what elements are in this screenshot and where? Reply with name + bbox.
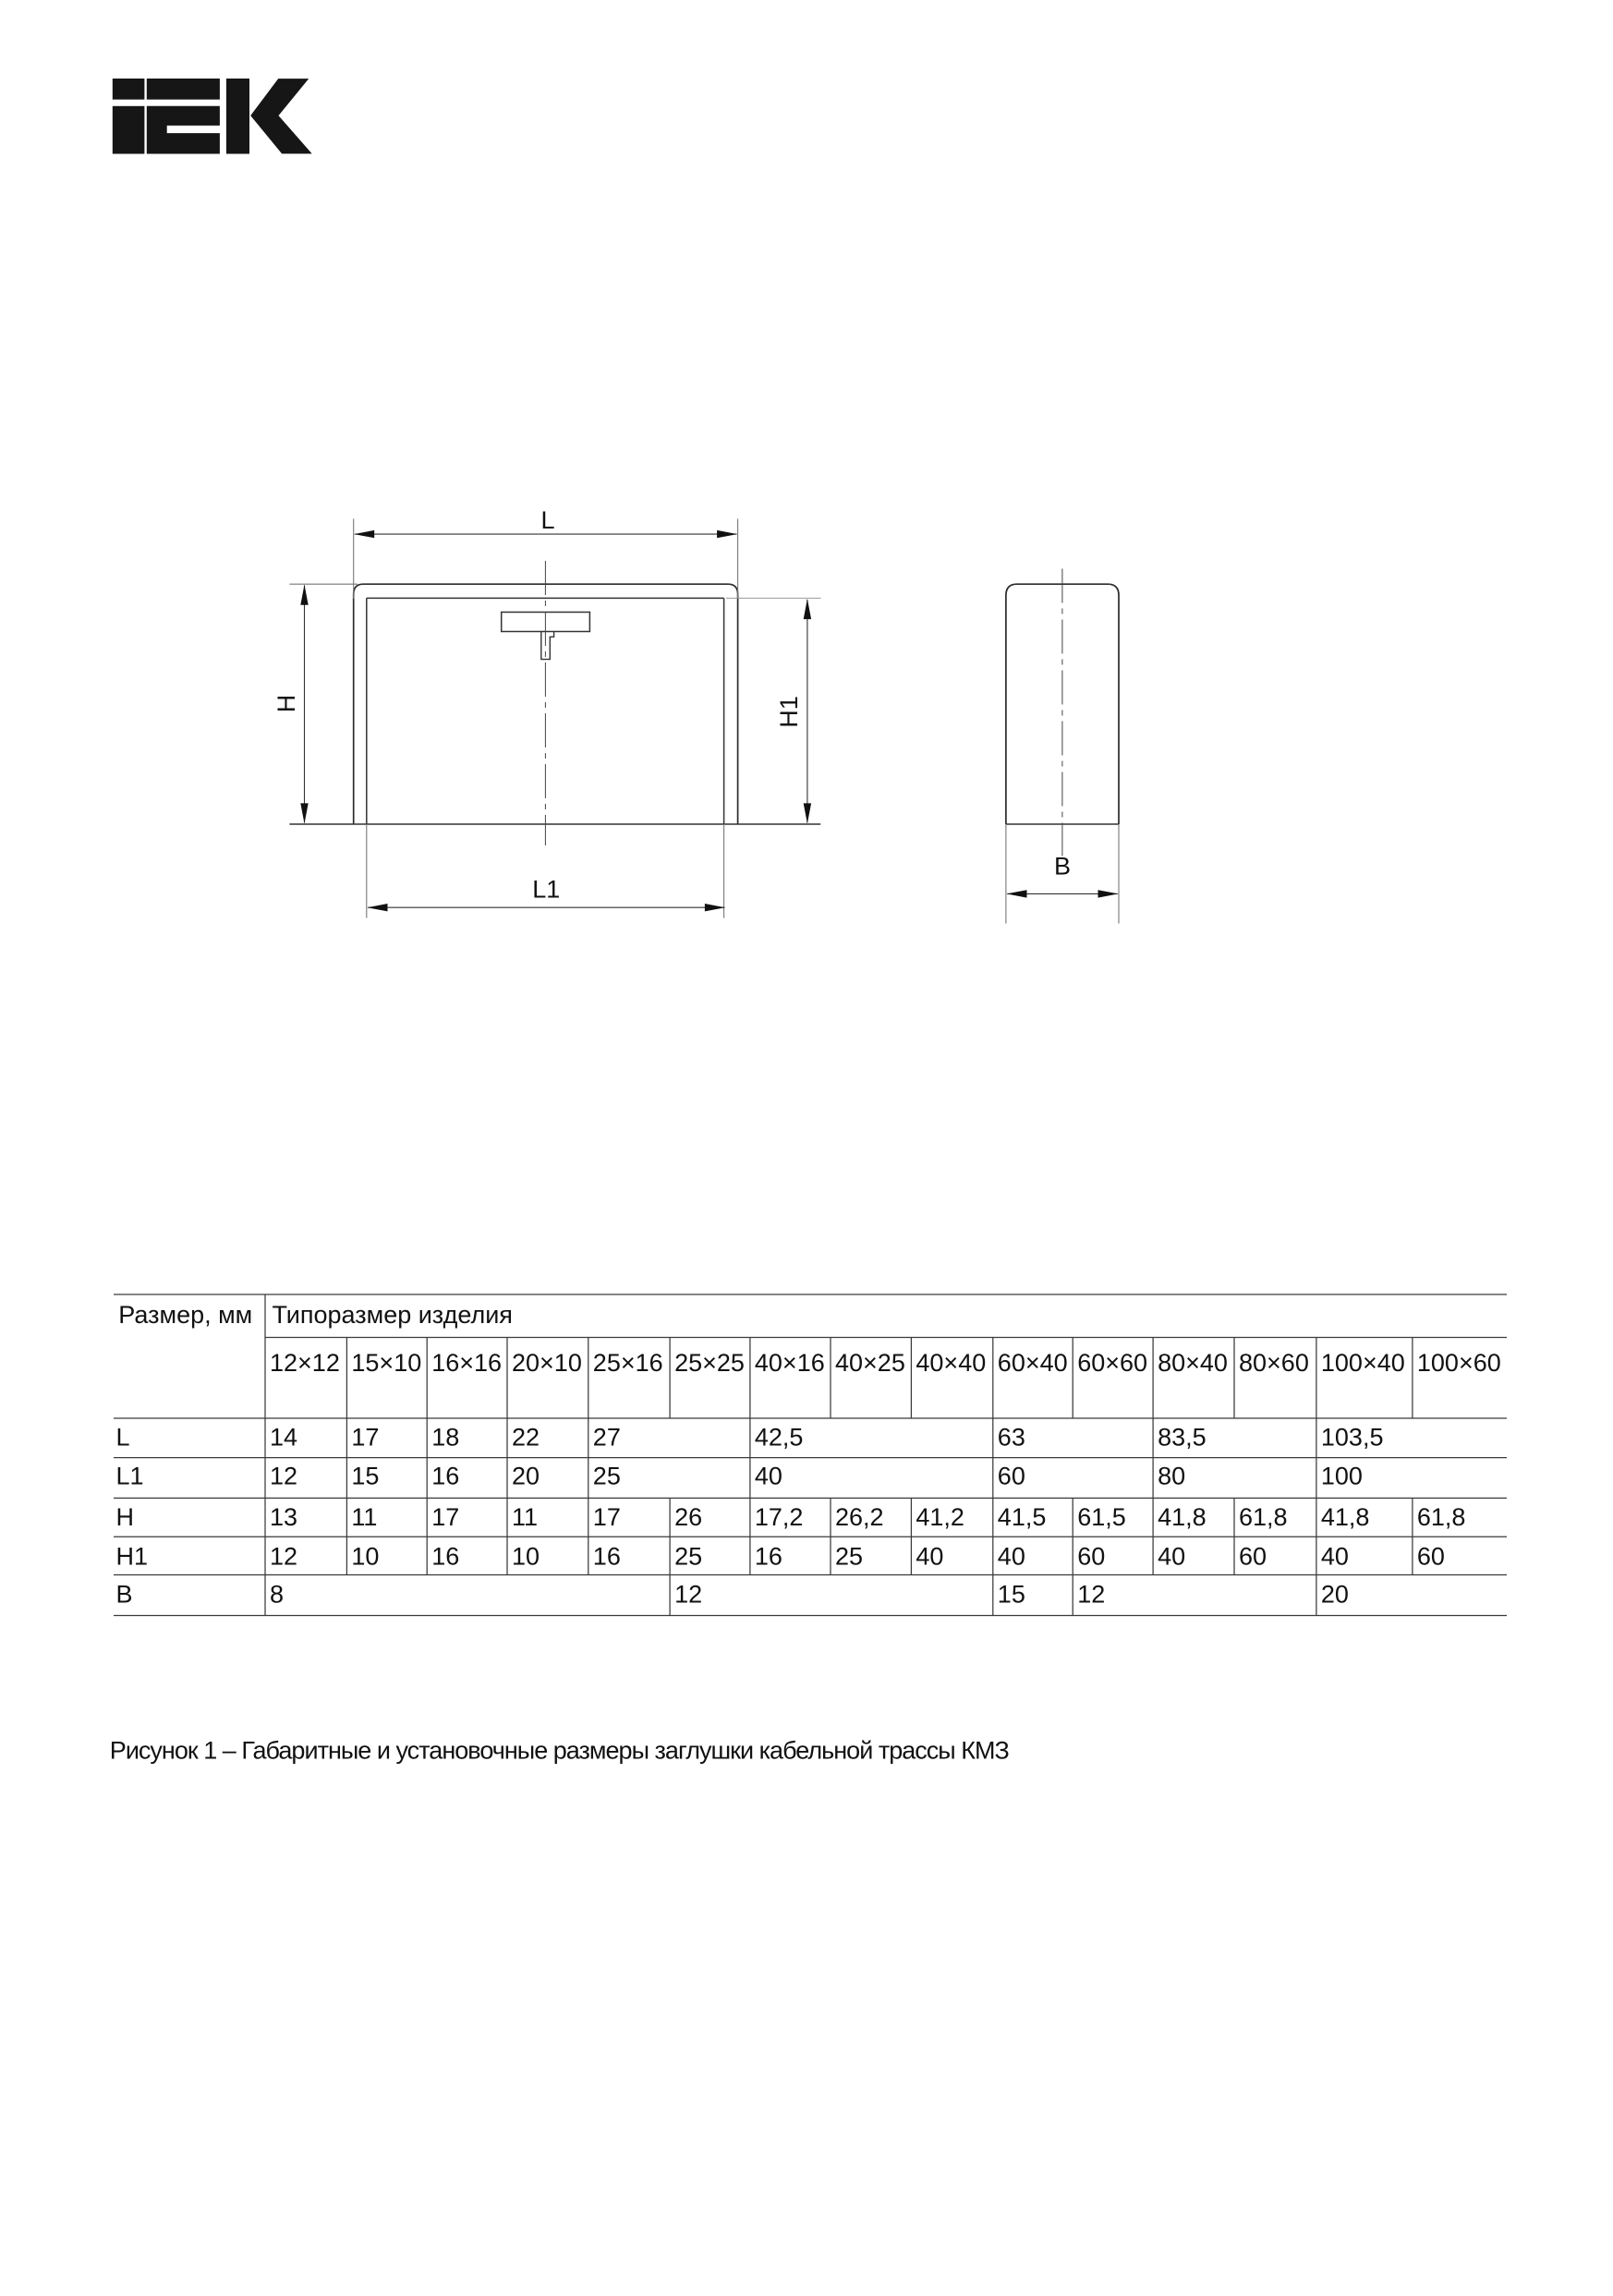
svg-text:L: L bbox=[116, 1424, 130, 1452]
svg-text:12: 12 bbox=[1077, 1581, 1105, 1609]
svg-text:18: 18 bbox=[431, 1424, 459, 1452]
svg-text:12: 12 bbox=[270, 1463, 297, 1490]
svg-text:25: 25 bbox=[835, 1543, 863, 1571]
svg-text:60: 60 bbox=[1077, 1543, 1105, 1571]
svg-text:61,8: 61,8 bbox=[1239, 1503, 1288, 1531]
svg-text:26,2: 26,2 bbox=[835, 1503, 884, 1531]
svg-text:10: 10 bbox=[351, 1543, 379, 1571]
svg-text:16: 16 bbox=[431, 1463, 459, 1490]
svg-text:40: 40 bbox=[998, 1543, 1025, 1571]
svg-text:26: 26 bbox=[674, 1503, 702, 1531]
svg-text:12: 12 bbox=[674, 1581, 702, 1609]
svg-text:13: 13 bbox=[270, 1503, 297, 1531]
svg-text:40: 40 bbox=[916, 1543, 943, 1571]
svg-text:15: 15 bbox=[351, 1463, 379, 1490]
svg-text:40×40: 40×40 bbox=[916, 1349, 986, 1377]
svg-text:61,8: 61,8 bbox=[1417, 1503, 1466, 1531]
svg-text:L1: L1 bbox=[532, 876, 560, 904]
svg-text:11: 11 bbox=[351, 1503, 377, 1531]
svg-text:L1: L1 bbox=[116, 1463, 144, 1490]
svg-text:B: B bbox=[1054, 853, 1071, 881]
svg-text:100×60: 100×60 bbox=[1417, 1349, 1501, 1377]
svg-text:20: 20 bbox=[1321, 1581, 1349, 1609]
svg-text:14: 14 bbox=[270, 1424, 297, 1452]
svg-text:41,2: 41,2 bbox=[916, 1503, 964, 1531]
svg-text:17: 17 bbox=[431, 1503, 459, 1531]
svg-text:H1: H1 bbox=[116, 1543, 149, 1571]
svg-text:Типоразмер изделия: Типоразмер изделия bbox=[273, 1301, 513, 1329]
svg-text:61,5: 61,5 bbox=[1077, 1503, 1126, 1531]
svg-text:25×16: 25×16 bbox=[593, 1349, 663, 1377]
svg-text:41,8: 41,8 bbox=[1158, 1503, 1207, 1531]
svg-text:27: 27 bbox=[593, 1424, 621, 1452]
svg-text:80×60: 80×60 bbox=[1239, 1349, 1309, 1377]
svg-text:40: 40 bbox=[1158, 1543, 1185, 1571]
svg-text:60: 60 bbox=[998, 1463, 1025, 1490]
svg-text:25: 25 bbox=[593, 1463, 621, 1490]
svg-text:10: 10 bbox=[512, 1543, 540, 1571]
svg-text:25: 25 bbox=[674, 1543, 702, 1571]
svg-text:100: 100 bbox=[1321, 1463, 1363, 1490]
svg-text:11: 11 bbox=[512, 1503, 538, 1531]
svg-text:20×10: 20×10 bbox=[512, 1349, 582, 1377]
svg-text:40×25: 40×25 bbox=[835, 1349, 905, 1377]
svg-text:16×16: 16×16 bbox=[431, 1349, 502, 1377]
svg-text:20: 20 bbox=[512, 1463, 540, 1490]
svg-text:42,5: 42,5 bbox=[755, 1424, 804, 1452]
svg-text:60×40: 60×40 bbox=[998, 1349, 1068, 1377]
svg-text:40: 40 bbox=[755, 1463, 782, 1490]
svg-text:15×10: 15×10 bbox=[351, 1349, 421, 1377]
svg-text:15: 15 bbox=[998, 1581, 1025, 1609]
svg-text:H1: H1 bbox=[775, 696, 803, 728]
svg-text:B: B bbox=[116, 1581, 133, 1609]
svg-text:40: 40 bbox=[1321, 1543, 1349, 1571]
svg-text:100×40: 100×40 bbox=[1321, 1349, 1405, 1377]
svg-text:83,5: 83,5 bbox=[1158, 1424, 1207, 1452]
svg-text:25×25: 25×25 bbox=[674, 1349, 745, 1377]
svg-text:40×16: 40×16 bbox=[755, 1349, 825, 1377]
svg-text:H: H bbox=[273, 695, 300, 713]
svg-text:Рисунок 1 – Габаритные и устан: Рисунок 1 – Габаритные и установочные ра… bbox=[110, 1737, 1010, 1765]
svg-text:41,5: 41,5 bbox=[998, 1503, 1047, 1531]
svg-text:16: 16 bbox=[593, 1543, 621, 1571]
svg-text:41,8: 41,8 bbox=[1321, 1503, 1370, 1531]
svg-text:60: 60 bbox=[1239, 1543, 1267, 1571]
svg-text:60×60: 60×60 bbox=[1077, 1349, 1147, 1377]
svg-text:H: H bbox=[116, 1503, 135, 1531]
svg-text:17,2: 17,2 bbox=[755, 1503, 804, 1531]
svg-text:80: 80 bbox=[1158, 1463, 1185, 1490]
svg-text:103,5: 103,5 bbox=[1321, 1424, 1384, 1452]
svg-text:17: 17 bbox=[351, 1424, 379, 1452]
svg-text:22: 22 bbox=[512, 1424, 540, 1452]
svg-text:63: 63 bbox=[998, 1424, 1025, 1452]
svg-text:60: 60 bbox=[1417, 1543, 1445, 1571]
svg-text:16: 16 bbox=[431, 1543, 459, 1571]
svg-text:Размер, мм: Размер, мм bbox=[118, 1301, 252, 1329]
svg-text:12×12: 12×12 bbox=[270, 1349, 340, 1377]
svg-text:17: 17 bbox=[593, 1503, 621, 1531]
svg-text:8: 8 bbox=[270, 1581, 284, 1609]
svg-text:L: L bbox=[540, 506, 554, 534]
svg-text:80×40: 80×40 bbox=[1158, 1349, 1228, 1377]
svg-text:16: 16 bbox=[755, 1543, 782, 1571]
svg-text:12: 12 bbox=[270, 1543, 297, 1571]
